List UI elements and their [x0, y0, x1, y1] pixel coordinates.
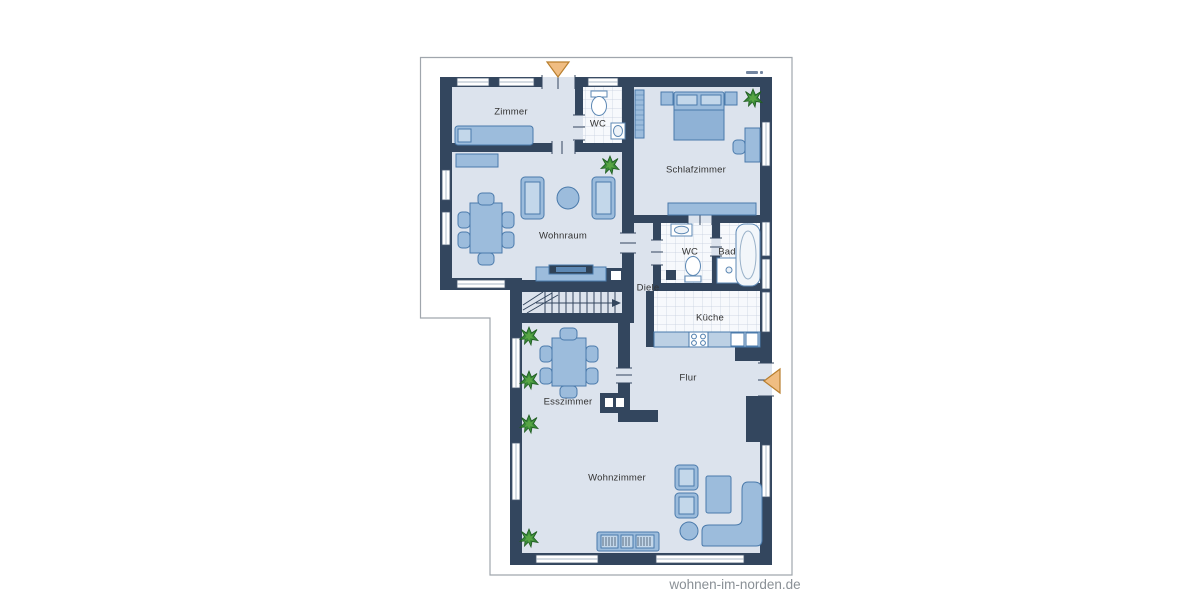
shower-drain: [726, 267, 732, 273]
coffee-table: [706, 476, 731, 513]
bed-pillow: [701, 95, 721, 105]
chair: [586, 368, 598, 384]
wall: [634, 215, 688, 223]
room-label-wohnzimmer: Wohnzimmer: [588, 473, 646, 484]
sink-basin: [614, 126, 623, 137]
bed-pillow: [677, 95, 697, 105]
door-opening: [552, 143, 575, 152]
wall: [653, 223, 661, 240]
room-label-zimmer: Zimmer: [494, 107, 527, 118]
round-table: [557, 187, 579, 209]
chair: [540, 368, 552, 384]
entrance-arrow-top-icon: [547, 62, 569, 77]
sideboard-shelf: [636, 535, 654, 548]
floorplan-page: Zimmer WC Schlafzimmer Wohnraum Diele WC…: [0, 0, 1200, 600]
room-label-wc-middle: WC: [682, 247, 698, 258]
room-label-wohnraum: Wohnraum: [539, 231, 587, 242]
sink-basin: [675, 226, 689, 234]
chair: [458, 232, 470, 248]
toilet-tank: [685, 276, 701, 282]
dining-table: [470, 203, 502, 253]
room-label-bad: Bad: [718, 247, 736, 258]
wall: [622, 143, 634, 233]
kitchen-fittings: [654, 332, 760, 347]
wall: [575, 87, 583, 115]
builder-logo-mark: [746, 71, 763, 74]
armchair-seat: [679, 469, 694, 486]
bed-pillow: [458, 129, 471, 142]
armchair-seat: [679, 497, 694, 514]
chair: [502, 232, 514, 248]
chair: [478, 253, 494, 265]
chimney-flue: [616, 398, 624, 407]
tv-screen: [556, 267, 586, 272]
sideboard-shelf: [601, 535, 618, 548]
chair: [458, 212, 470, 228]
side-table: [680, 522, 698, 540]
room-label-wc-upper: WC: [590, 119, 606, 130]
sideboard: [456, 154, 498, 167]
floorplan-drawing: [0, 0, 1200, 600]
wall: [746, 396, 772, 442]
nightstand: [725, 92, 737, 105]
chair: [586, 346, 598, 362]
wall-shaft-opening: [611, 271, 621, 280]
room-label-esszimmer: Esszimmer: [544, 397, 593, 408]
wall: [618, 323, 630, 368]
chimney-flue: [605, 398, 613, 407]
watermark-text: wohnen-im-norden.de: [660, 577, 810, 592]
chair: [502, 212, 514, 228]
wall: [510, 313, 634, 323]
wall: [712, 215, 760, 223]
wall: [712, 223, 720, 238]
kitchen-sink-icon: [731, 333, 744, 346]
chair: [560, 328, 577, 340]
kitchen-sink-icon: [746, 333, 758, 346]
sofa-seat: [525, 182, 540, 214]
wall: [646, 291, 654, 347]
sideboard: [668, 203, 756, 215]
room-label-schlafzimmer: Schlafzimmer: [666, 165, 726, 176]
room-label-kueche: Küche: [696, 313, 724, 324]
room-label-diele: Diele: [637, 283, 660, 294]
wall: [735, 347, 760, 361]
room-label-flur: Flur: [679, 373, 696, 384]
chair: [540, 346, 552, 362]
desk-chair: [733, 140, 745, 154]
nightstand: [661, 92, 673, 105]
toilet-icon: [592, 97, 607, 116]
desk: [745, 128, 760, 162]
chair: [478, 193, 494, 205]
bed-blanket: [674, 110, 724, 140]
wardrobe: [635, 90, 644, 138]
dining-table: [552, 338, 586, 386]
wall: [618, 410, 658, 422]
sofa-seat: [596, 182, 611, 214]
wall: [666, 270, 676, 280]
toilet-icon: [686, 257, 701, 276]
